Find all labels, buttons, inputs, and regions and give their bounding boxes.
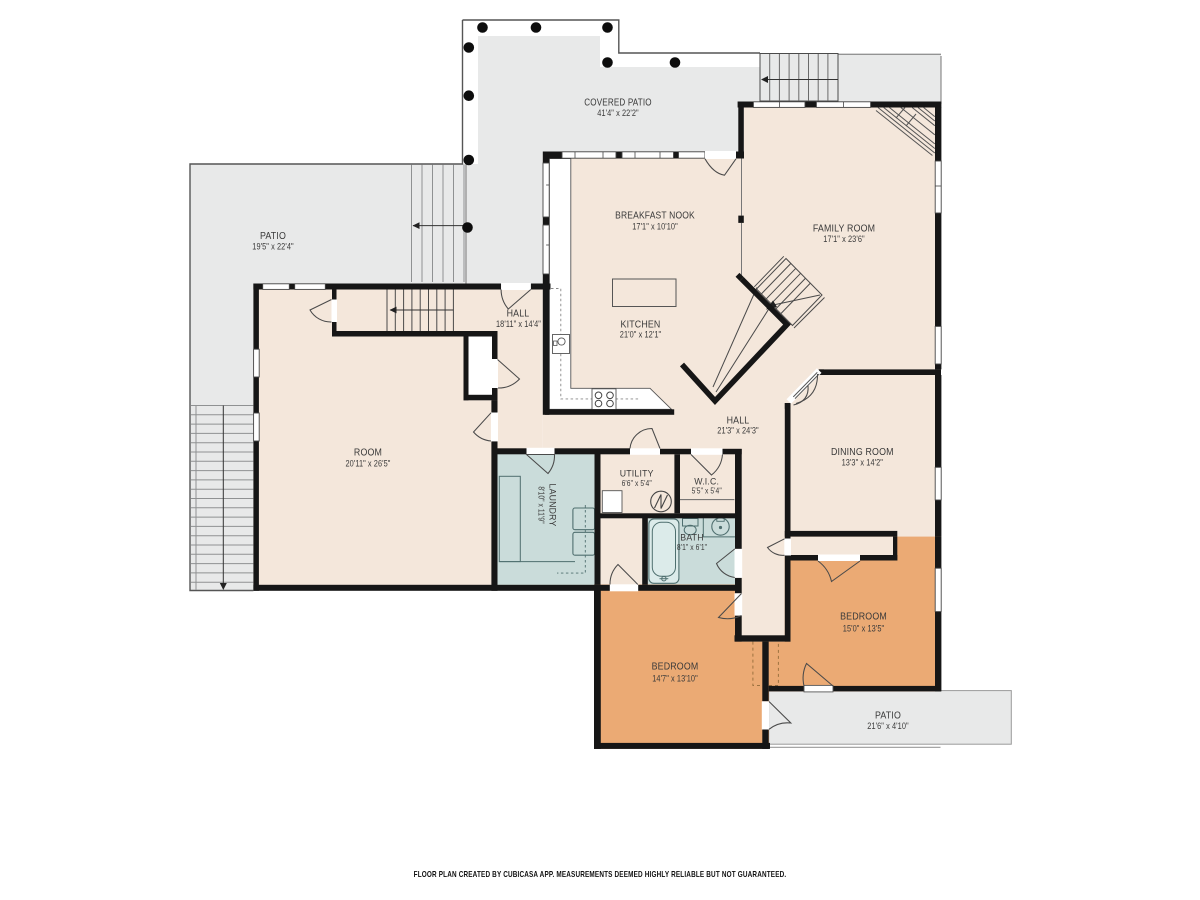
- svg-text:8'1" x 6'1": 8'1" x 6'1": [677, 542, 707, 552]
- svg-text:21'6" x 4'10": 21'6" x 4'10": [867, 720, 908, 731]
- svg-text:FLOOR PLAN CREATED BY CUBICASA: FLOOR PLAN CREATED BY CUBICASA APP. MEAS…: [414, 869, 787, 879]
- svg-text:21'0" x 12'1": 21'0" x 12'1": [620, 328, 661, 339]
- svg-text:8'10" x 11'9": 8'10" x 11'9": [536, 486, 546, 524]
- svg-text:BATH: BATH: [680, 532, 703, 542]
- svg-text:6'6" x 5'4": 6'6" x 5'4": [622, 478, 652, 488]
- svg-text:17'1" x 23'6": 17'1" x 23'6": [823, 233, 864, 244]
- svg-text:21'3" x 24'3": 21'3" x 24'3": [717, 424, 758, 435]
- svg-text:19'5" x 22'4": 19'5" x 22'4": [252, 240, 293, 251]
- svg-text:BEDROOM: BEDROOM: [652, 661, 699, 673]
- svg-text:UTILITY: UTILITY: [620, 468, 654, 478]
- svg-text:14'7" x 13'10": 14'7" x 13'10": [652, 672, 698, 683]
- svg-text:13'3" x 14'2": 13'3" x 14'2": [842, 457, 883, 468]
- svg-text:17'1" x 10'10": 17'1" x 10'10": [632, 220, 678, 231]
- svg-text:20'11" x 26'5": 20'11" x 26'5": [345, 457, 390, 468]
- svg-text:BEDROOM: BEDROOM: [840, 611, 887, 623]
- svg-text:18'11" x 14'4": 18'11" x 14'4": [496, 318, 541, 329]
- svg-text:LAUNDRY: LAUNDRY: [547, 484, 557, 527]
- svg-text:15'0" x 13'5": 15'0" x 13'5": [843, 623, 884, 634]
- svg-text:41'4" x 22'2": 41'4" x 22'2": [597, 107, 638, 118]
- svg-text:5'5" x 5'4": 5'5" x 5'4": [692, 486, 722, 496]
